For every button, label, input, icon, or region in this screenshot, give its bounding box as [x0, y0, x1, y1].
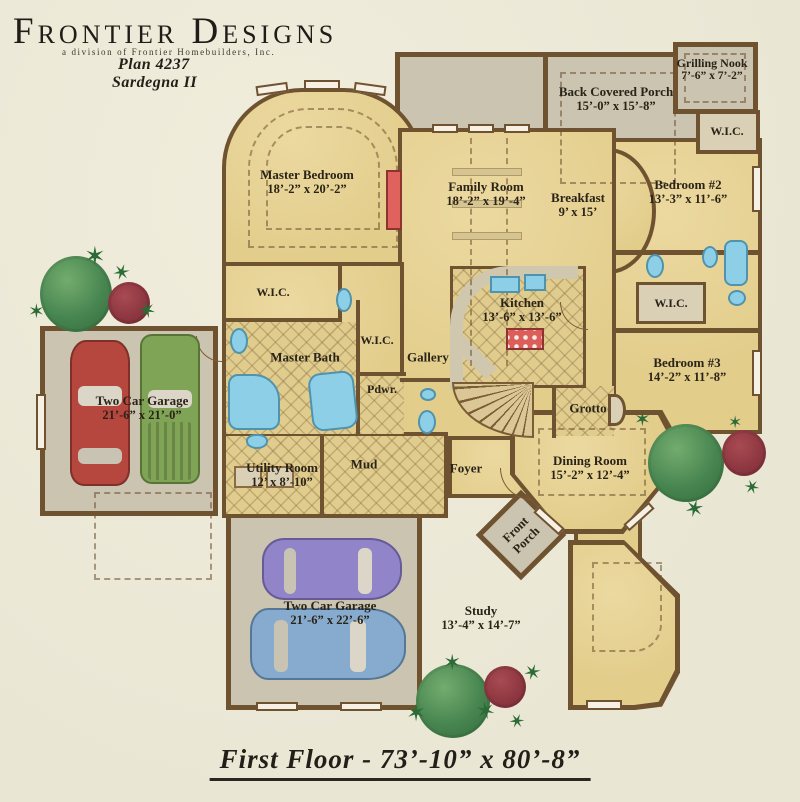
kitchen-sink-icon [524, 274, 546, 291]
room-label-mud: Mud [351, 456, 378, 471]
room-label-breakfast: Breakfast 9’ x 15’ [551, 190, 605, 220]
mud-tile [324, 436, 444, 514]
room-label-powder: Pdwr. [367, 382, 397, 396]
palm-icon: ✶ [28, 302, 45, 322]
room-label-family-room: Family Room 18’-2” x 19’-4” [446, 179, 525, 209]
room-label-gallery: Gallery [407, 349, 449, 364]
ceiling-beam [452, 168, 522, 176]
window [36, 394, 46, 450]
window [340, 702, 382, 711]
room-label-dining: Dining Room 15’-2” x 12’-4” [550, 453, 629, 483]
bush-icon [722, 430, 766, 476]
palm-icon: ✶ [505, 709, 529, 734]
palm-icon: ✶ [634, 410, 651, 430]
room-label-study: Study 13’-4” x 14’-7” [441, 603, 520, 633]
window [752, 350, 762, 396]
bathtub-icon [228, 374, 280, 430]
toilet-icon [246, 434, 268, 449]
toilet-icon [702, 246, 718, 268]
room-label-bedroom-3: Bedroom #3 14’-2” x 11’-8” [648, 355, 726, 385]
wall [616, 328, 758, 333]
room-label-wic-right: W.I.C. [654, 296, 687, 310]
driveway-dashes [94, 492, 212, 580]
window [256, 702, 298, 711]
room-label-master-bath: Master Bath [270, 349, 339, 364]
plan-number: Plan 4237 [118, 56, 190, 74]
window [432, 124, 458, 133]
room-label-garage-left: Two Car Garage 21’-6” x 21’-0” [96, 393, 189, 423]
study-tray [592, 562, 662, 652]
floor-title: First Floor - 73’-10” x 80’-8” [210, 744, 591, 781]
room-label-foyer: Foyer [450, 460, 482, 475]
plan-name: Sardegna II [112, 74, 197, 92]
car-purple [262, 538, 402, 600]
palm-icon: ✶ [443, 652, 461, 674]
room-label-back-porch: Back Covered Porch 15’-0” x 15’-8” [559, 84, 673, 114]
ceiling-beam [452, 232, 522, 240]
window [304, 80, 340, 90]
room-label-wic-top-right: W.I.C. [710, 124, 743, 138]
window [504, 124, 530, 133]
wall [400, 378, 452, 382]
room-label-bedroom-2: Bedroom #2 13’-3” x 11’-6” [649, 177, 727, 207]
palm-icon: ✶ [520, 660, 544, 687]
room-label-grotto: Grotto [569, 400, 606, 415]
palm-icon: ✶ [741, 476, 764, 501]
window [752, 166, 762, 212]
wall [224, 318, 342, 322]
palm-icon: ✶ [681, 496, 706, 524]
room-label-wic-mid: W.I.C. [360, 333, 393, 347]
window [586, 700, 622, 710]
fireplace-icon [386, 170, 402, 230]
room-label-garage-bottom: Two Car Garage 21’-6” x 22’-6” [284, 598, 377, 628]
kitchen-sink-icon [490, 276, 520, 293]
sink-icon [230, 328, 248, 354]
room-label-wic-master: W.I.C. [256, 285, 289, 299]
sink-icon [646, 254, 664, 278]
palm-icon: ✶ [728, 414, 742, 431]
sink-icon [420, 388, 436, 401]
shower-icon [307, 370, 359, 432]
palm-icon: ✶ [84, 244, 106, 270]
bathtub-icon [724, 240, 748, 286]
room-label-kitchen: Kitchen 13’-6” x 13’-6” [482, 295, 561, 325]
room-label-utility: Utility Room 12’ x 8’-10” [246, 460, 318, 490]
sink-icon [728, 290, 746, 306]
floor-plan-page: Frontier Designs a division of Frontier … [0, 0, 800, 802]
palm-icon: ✶ [406, 702, 426, 726]
room-label-master-bedroom: Master Bedroom 18’-2” x 20’-2” [260, 167, 354, 197]
tree-icon [648, 424, 724, 502]
range-icon [506, 328, 544, 350]
room-label-grilling-nook: Grilling Nook 7’-6” x 7’-2” [676, 56, 747, 84]
wall [356, 372, 406, 376]
sink-icon [336, 288, 352, 312]
toilet-icon [418, 410, 436, 434]
window [468, 124, 494, 133]
